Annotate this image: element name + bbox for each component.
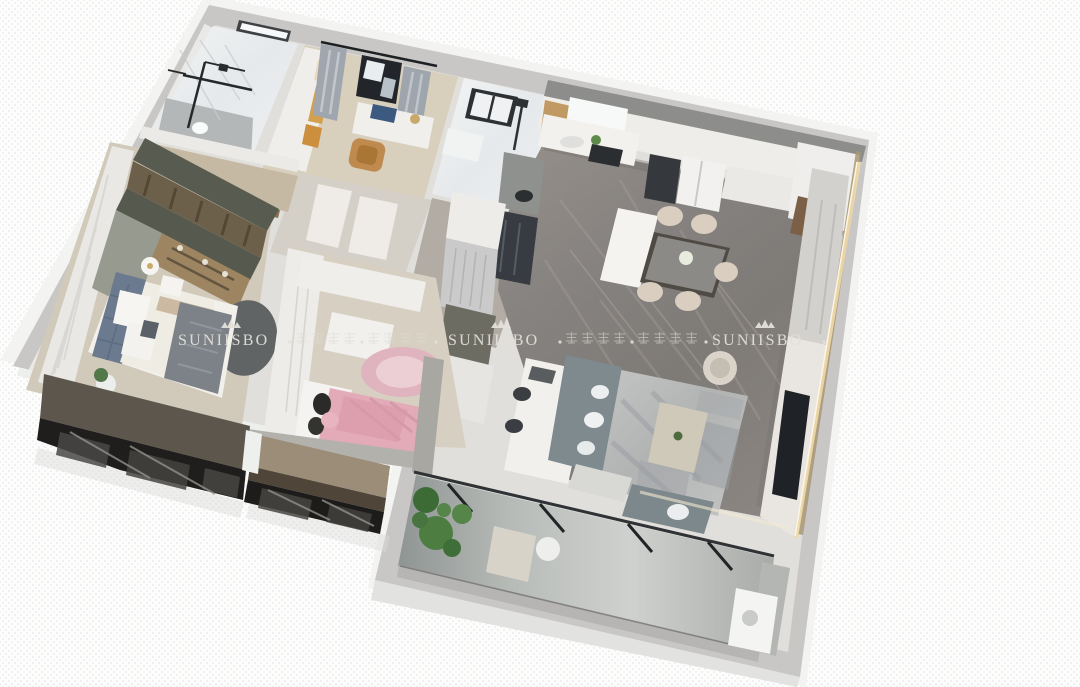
svg-text:SUNIISBO: SUNIISBO <box>178 332 269 349</box>
svg-text:SUNIISBO: SUNIISBO <box>712 332 803 349</box>
svg-text:SUNIISBO: SUNIISBO <box>448 332 539 349</box>
